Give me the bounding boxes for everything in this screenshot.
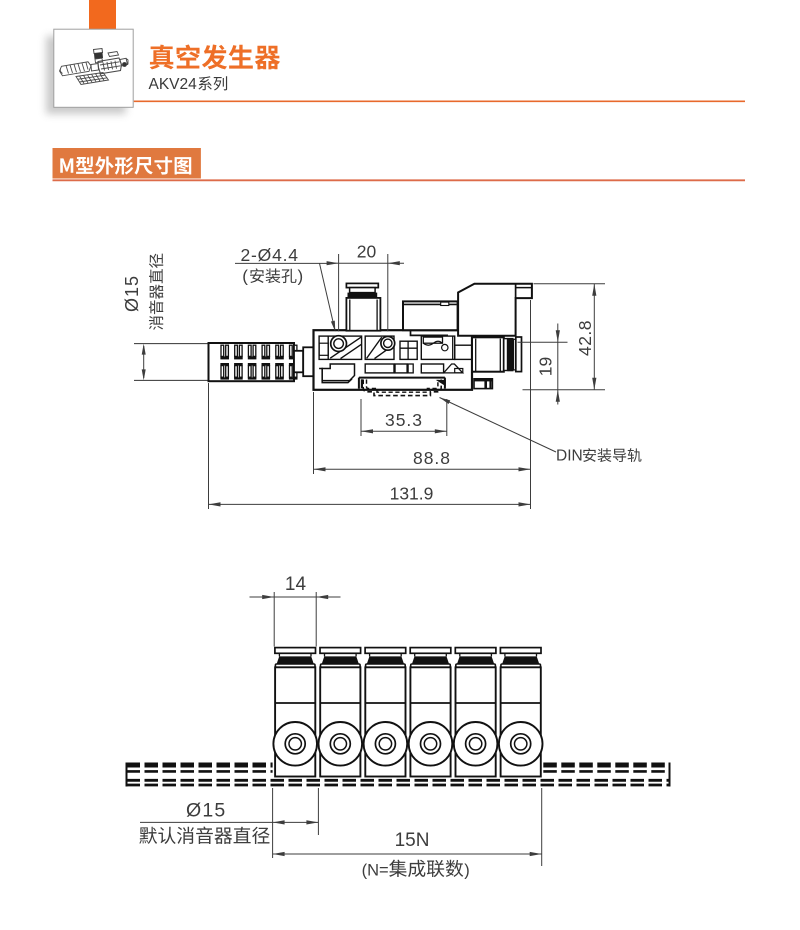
svg-text:88.8: 88.8 [413,448,451,468]
svg-text:131.9: 131.9 [390,483,434,503]
svg-text:): ) [298,267,304,286]
svg-text:2-Ø4.4: 2-Ø4.4 [241,245,299,265]
svg-text:(: ( [242,267,248,286]
svg-text:20: 20 [357,242,377,262]
svg-text:DIN: DIN [556,448,583,465]
svg-text:42.8: 42.8 [575,320,595,356]
svg-text:19: 19 [536,357,556,376]
svg-text:14: 14 [285,574,307,595]
svg-text:Ø15: Ø15 [122,275,142,312]
svg-text:15N: 15N [395,830,430,851]
svg-text:): ) [464,862,470,880]
svg-text:AKV24: AKV24 [149,76,198,93]
svg-text:35.3: 35.3 [385,410,423,430]
svg-text:Ø15: Ø15 [186,799,226,821]
svg-text:(N=: (N= [362,862,389,880]
